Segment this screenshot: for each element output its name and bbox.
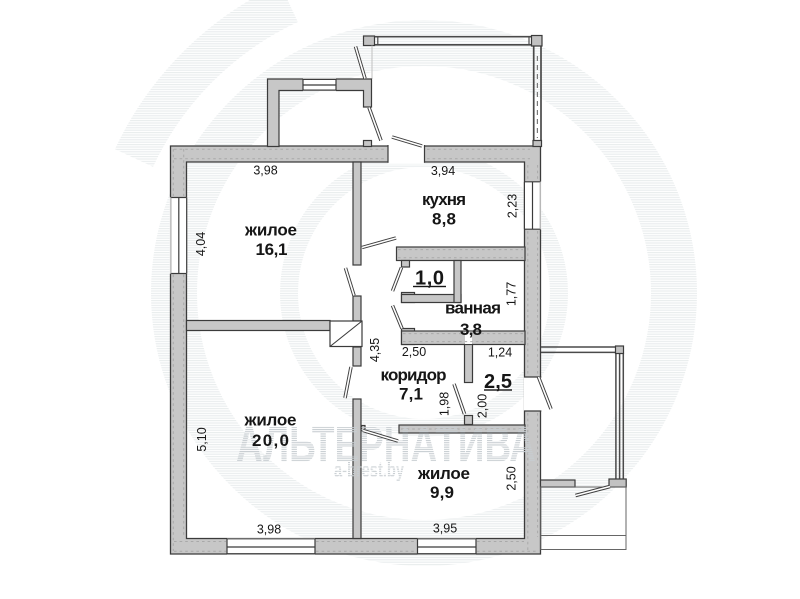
svg-text:2,00: 2,00 [476,394,490,418]
svg-text:2,23: 2,23 [506,194,520,218]
svg-text:коридор: коридор [381,366,447,385]
svg-text:1,77: 1,77 [505,282,519,306]
svg-text:3,95: 3,95 [433,522,457,536]
svg-text:3,98: 3,98 [257,523,281,537]
svg-text:жилое: жилое [244,411,297,430]
svg-text:9,9: 9,9 [430,483,454,502]
svg-text:1,98: 1,98 [437,392,451,416]
svg-text:ванная: ванная [445,299,501,318]
svg-text:3,98: 3,98 [253,164,277,178]
svg-text:20,0: 20,0 [252,431,289,450]
svg-text:жилое: жилое [244,220,297,239]
svg-text:кухня: кухня [422,190,466,209]
svg-text:4,04: 4,04 [194,232,208,256]
svg-text:2,50: 2,50 [402,345,426,359]
svg-text:3,8: 3,8 [460,320,482,339]
svg-text:8,8: 8,8 [432,210,456,229]
svg-text:3,94: 3,94 [431,164,455,178]
svg-text:7,1: 7,1 [399,385,423,404]
svg-text:1,24: 1,24 [488,346,512,360]
svg-text:16,1: 16,1 [256,240,288,259]
svg-text:a-brest.by: a-brest.by [334,459,404,482]
svg-text:жилое: жилое [417,464,470,483]
svg-text:2,50: 2,50 [505,466,519,490]
svg-text:5,10: 5,10 [195,427,209,451]
svg-text:4,35: 4,35 [368,338,382,362]
